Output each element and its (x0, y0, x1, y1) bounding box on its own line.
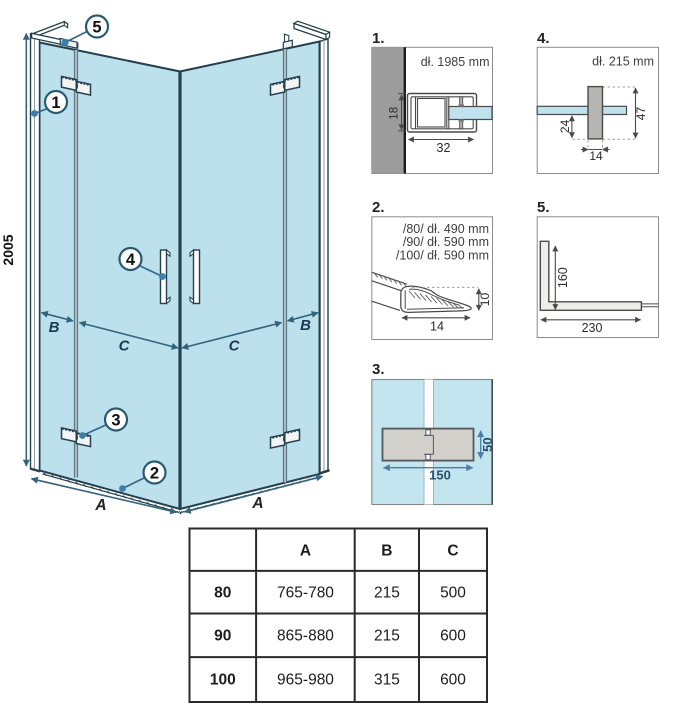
svg-text:4: 4 (126, 251, 136, 269)
svg-text:C: C (229, 338, 241, 355)
svg-text:2005: 2005 (0, 234, 16, 265)
svg-text:dł. 1985 mm: dł. 1985 mm (421, 55, 490, 69)
svg-text:4.: 4. (537, 30, 550, 47)
svg-text:3.: 3. (372, 361, 385, 378)
svg-text:230: 230 (582, 321, 603, 335)
svg-text:14: 14 (430, 320, 444, 334)
svg-text:80: 80 (214, 585, 231, 602)
svg-text:47: 47 (634, 107, 648, 121)
svg-text:18: 18 (389, 107, 401, 120)
svg-text:5.: 5. (537, 199, 550, 216)
svg-text:A: A (300, 542, 311, 559)
svg-text:600: 600 (440, 672, 466, 689)
svg-text:90: 90 (214, 628, 231, 645)
svg-text:/100/ dł. 590 mm: /100/ dł. 590 mm (396, 249, 489, 263)
svg-text:600: 600 (440, 628, 466, 645)
svg-text:500: 500 (440, 585, 466, 602)
svg-text:dł. 215 mm: dł. 215 mm (592, 55, 654, 69)
svg-text:50: 50 (480, 437, 495, 451)
svg-text:865-880: 865-880 (277, 628, 334, 645)
svg-text:32: 32 (437, 141, 451, 155)
svg-text:215: 215 (374, 585, 400, 602)
svg-text:160: 160 (556, 267, 570, 288)
svg-text:1.: 1. (372, 30, 385, 47)
svg-text:14: 14 (589, 149, 603, 163)
svg-text:A: A (251, 495, 263, 512)
svg-text:A: A (94, 497, 106, 514)
svg-text:3: 3 (111, 411, 120, 429)
svg-text:1: 1 (51, 94, 60, 112)
svg-text:215: 215 (374, 628, 400, 645)
svg-text:315: 315 (374, 672, 400, 689)
svg-text:/90/ dł. 590 mm: /90/ dł. 590 mm (403, 235, 489, 249)
svg-text:765-780: 765-780 (277, 585, 334, 602)
svg-text:B: B (300, 317, 311, 334)
svg-text:100: 100 (210, 672, 236, 689)
svg-text:150: 150 (429, 468, 451, 483)
svg-text:965-980: 965-980 (277, 672, 334, 689)
svg-text:5: 5 (92, 18, 101, 36)
svg-text:24: 24 (558, 119, 572, 133)
svg-text:2.: 2. (372, 199, 385, 216)
svg-text:C: C (119, 338, 131, 355)
svg-text:C: C (447, 542, 458, 559)
svg-text:B: B (49, 319, 60, 336)
svg-text:/80/ dł. 490 mm: /80/ dł. 490 mm (403, 222, 489, 236)
svg-text:B: B (381, 542, 392, 559)
svg-text:10: 10 (478, 293, 492, 307)
svg-text:2: 2 (150, 464, 159, 482)
